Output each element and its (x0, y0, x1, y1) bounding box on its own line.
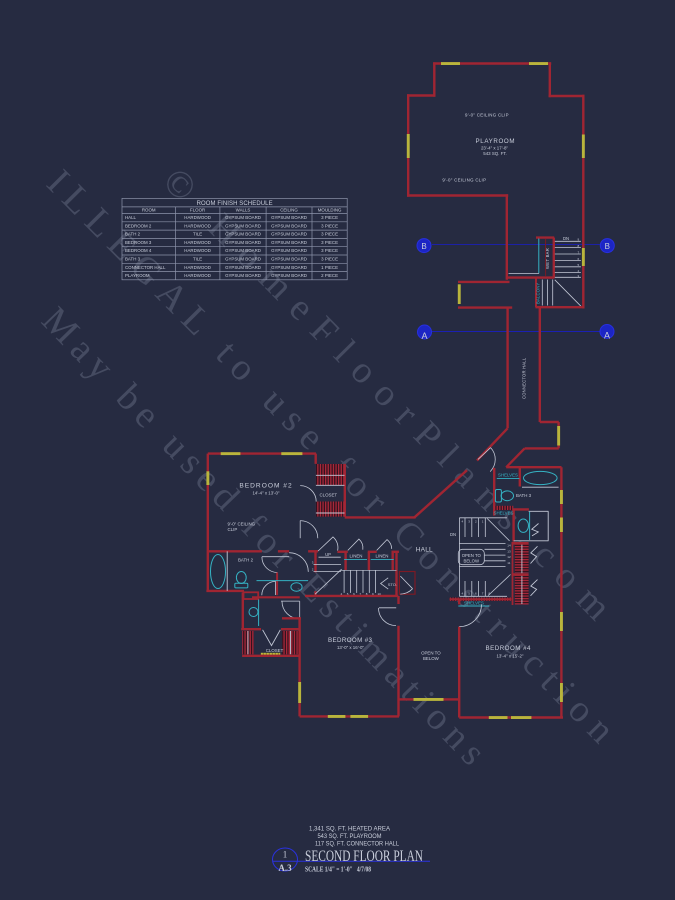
svg-text:GYPSUM BOARD: GYPSUM BOARD (225, 248, 261, 253)
svg-text:23'-4" x 17'-8": 23'-4" x 17'-8" (481, 146, 508, 151)
svg-text:11: 11 (507, 561, 510, 565)
svg-text:DN: DN (450, 532, 456, 537)
svg-text:14'-4" x 13'-0": 14'-4" x 13'-0" (252, 491, 279, 496)
svg-text:SHELVES: SHELVES (498, 472, 518, 477)
svg-text:BATH 3: BATH 3 (125, 257, 141, 262)
svg-text:HARDWOOD: HARDWOOD (184, 215, 211, 220)
svg-text:CONNECTOR HALL: CONNECTOR HALL (125, 265, 166, 270)
svg-text:BATH 2: BATH 2 (125, 232, 141, 237)
svg-text:GYPSUM BOARD: GYPSUM BOARD (225, 240, 261, 245)
svg-text:SCALE 1/4" = 1'-0" 4/7/08: SCALE 1/4" = 1'-0" 4/7/08 (305, 865, 371, 874)
svg-text:GYPSUM BOARD: GYPSUM BOARD (271, 240, 307, 245)
svg-text:CONNECTOR HALL: CONNECTOR HALL (522, 357, 527, 399)
svg-text:GYPSUM BOARD: GYPSUM BOARD (271, 232, 307, 237)
svg-text:3 PIECE: 3 PIECE (321, 215, 338, 220)
svg-text:BEDROOM 2: BEDROOM 2 (125, 223, 152, 228)
svg-text:HARDWOOD: HARDWOOD (184, 223, 211, 228)
svg-text:FLOOR: FLOOR (190, 208, 205, 213)
svg-text:BEDROOM #2: BEDROOM #2 (239, 483, 292, 490)
svg-text:SHELVES: SHELVES (464, 601, 484, 606)
svg-text:117 SQ. FT. CONNECTOR HALL: 117 SQ. FT. CONNECTOR HALL (315, 841, 400, 848)
svg-text:UP: UP (325, 552, 331, 557)
svg-text:DN: DN (563, 236, 569, 241)
svg-text:1 PIECE: 1 PIECE (321, 265, 338, 270)
svg-text:GYPSUM BOARD: GYPSUM BOARD (225, 223, 261, 228)
svg-text:HALL: HALL (125, 215, 137, 220)
svg-text:WET BAR: WET BAR (545, 248, 550, 269)
svg-text:1,341 SQ. FT. HEATED AREA: 1,341 SQ. FT. HEATED AREA (309, 826, 391, 833)
svg-text:GYPSUM BOARD: GYPSUM BOARD (225, 215, 261, 220)
svg-text:ROOM FINISH SCHEDULE: ROOM FINISH SCHEDULE (197, 201, 273, 207)
svg-text:9'-0" CEILING CLIP: 9'-0" CEILING CLIP (465, 113, 509, 118)
svg-text:GYPSUM BOARD: GYPSUM BOARD (225, 273, 261, 278)
svg-text:TILE: TILE (193, 232, 202, 237)
svg-text:2 PIECE: 2 PIECE (321, 273, 338, 278)
svg-text:LINEN: LINEN (376, 553, 389, 558)
svg-text:BELOW: BELOW (464, 558, 480, 563)
svg-text:CEILING: CEILING (280, 208, 298, 213)
svg-text:A: A (604, 331, 610, 341)
svg-text:SHELVES: SHELVES (494, 510, 514, 515)
svg-text:HARDWOOD: HARDWOOD (184, 273, 211, 278)
svg-text:GYPSUM BOARD: GYPSUM BOARD (271, 257, 307, 262)
svg-text:BEDROOM 3: BEDROOM 3 (125, 240, 152, 245)
svg-text:3 PIECE: 3 PIECE (321, 248, 338, 253)
svg-text:HARDWOOD: HARDWOOD (184, 265, 211, 270)
svg-text:BEDROOM #4: BEDROOM #4 (486, 645, 532, 652)
svg-text:TILE: TILE (193, 257, 202, 262)
svg-text:543 SQ. FT.: 543 SQ. FT. (483, 151, 506, 156)
svg-text:BEDROOM #3: BEDROOM #3 (328, 637, 373, 644)
svg-text:GYPSUM BOARD: GYPSUM BOARD (225, 257, 261, 262)
svg-text:CLOSET: CLOSET (320, 492, 338, 497)
svg-text:MOULDING: MOULDING (318, 208, 342, 213)
svg-text:3 PIECE: 3 PIECE (321, 240, 338, 245)
svg-text:HALL: HALL (416, 547, 434, 554)
svg-text:13'-4" x 15'-2": 13'-4" x 15'-2" (496, 654, 523, 659)
svg-text:LINEN: LINEN (350, 553, 363, 558)
svg-text:3 PIECE: 3 PIECE (321, 257, 338, 262)
svg-text:OPEN TO: OPEN TO (462, 553, 482, 558)
svg-text:PLAYROOM: PLAYROOM (476, 138, 516, 145)
svg-text:PLAYROOM: PLAYROOM (125, 273, 150, 278)
svg-text:BATH 3: BATH 3 (516, 493, 532, 498)
svg-text:A: A (421, 331, 427, 341)
svg-text:9'-0" CEILING: 9'-0" CEILING (228, 522, 256, 527)
svg-text:GYPSUM BOARD: GYPSUM BOARD (271, 248, 307, 253)
svg-text:3 PIECE: 3 PIECE (321, 232, 338, 237)
svg-text:9'-0" CEILING CLIP: 9'-0" CEILING CLIP (442, 178, 486, 183)
svg-text:3 PIECE: 3 PIECE (321, 223, 338, 228)
svg-text:ROOM: ROOM (142, 208, 156, 213)
svg-text:OPEN TO: OPEN TO (421, 651, 441, 656)
svg-text:1: 1 (283, 850, 288, 860)
svg-text:B: B (605, 242, 610, 251)
svg-text:GYPSUM BOARD: GYPSUM BOARD (225, 232, 261, 237)
svg-text:543 SQ. FT. PLAYROOM: 543 SQ. FT. PLAYROOM (318, 833, 382, 840)
svg-text:14: 14 (507, 544, 511, 548)
svg-text:HARDWOOD: HARDWOOD (184, 248, 211, 253)
svg-text:B: B (421, 242, 426, 251)
svg-text:13'-0" x 16'-0": 13'-0" x 16'-0" (337, 645, 364, 650)
svg-text:A.3: A.3 (278, 863, 292, 873)
svg-text:GYPSUM BOARD: GYPSUM BOARD (225, 265, 261, 270)
svg-text:CLOSET: CLOSET (266, 648, 284, 653)
svg-text:STO.: STO. (388, 582, 397, 587)
svg-text:GYPSUM BOARD: GYPSUM BOARD (271, 265, 307, 270)
svg-text:WALLS: WALLS (236, 208, 251, 213)
svg-text:BEDROOM 4: BEDROOM 4 (125, 248, 152, 253)
svg-text:GYPSUM BOARD: GYPSUM BOARD (271, 215, 307, 220)
svg-text:SECOND FLOOR PLAN: SECOND FLOOR PLAN (305, 848, 423, 865)
svg-text:HARDWOOD: HARDWOOD (184, 240, 211, 245)
svg-text:GYPSUM BOARD: GYPSUM BOARD (271, 273, 307, 278)
svg-text:BELOW: BELOW (423, 656, 440, 661)
svg-text:GYPSUM BOARD: GYPSUM BOARD (271, 223, 307, 228)
svg-text:13: 13 (507, 549, 511, 553)
svg-text:12: 12 (507, 555, 511, 559)
svg-text:BATH 2: BATH 2 (238, 558, 254, 563)
svg-text:10: 10 (378, 592, 382, 596)
svg-text:CLIP: CLIP (228, 527, 238, 532)
svg-text:BALCONY: BALCONY (536, 283, 541, 304)
